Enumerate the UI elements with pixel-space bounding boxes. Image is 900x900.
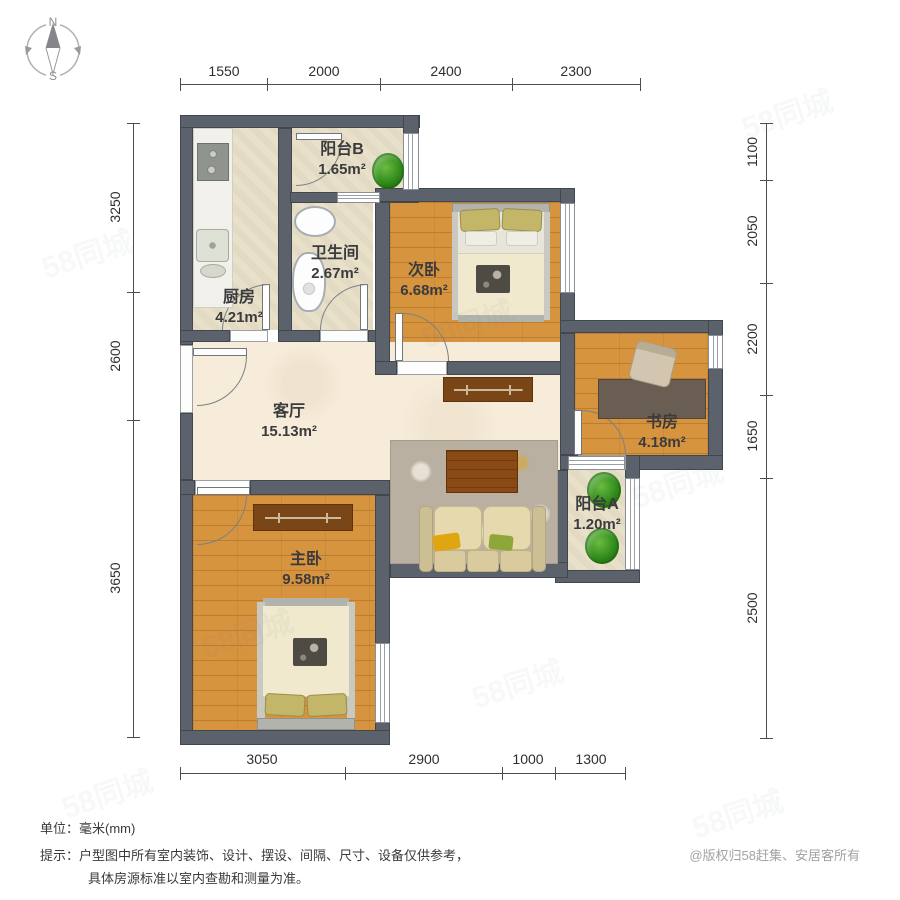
wall-bedroom2-bottom-left xyxy=(375,361,397,375)
wall-top xyxy=(180,115,420,128)
room-area: 9.58m² xyxy=(282,570,330,589)
room-label-balcony-a: 阳台A 1.20m² xyxy=(573,495,621,534)
master-bed xyxy=(257,598,355,730)
dim-tick xyxy=(127,123,140,124)
window-study xyxy=(708,335,723,369)
bed-pillow-small xyxy=(506,231,538,246)
room-name: 次卧 xyxy=(400,261,448,281)
study-door-leaf xyxy=(574,410,582,455)
dim-tick xyxy=(760,395,773,396)
bed-tray xyxy=(476,265,510,293)
bed-headboard xyxy=(257,718,355,730)
wall-bath-bottom-left xyxy=(278,330,320,342)
bedroom2-door-leaf xyxy=(395,313,403,361)
watermark-text: 58同城 xyxy=(35,217,137,288)
window-bedroom2 xyxy=(560,203,575,293)
sofa-seat-cushion xyxy=(467,550,499,572)
unit-prefix: 单位： xyxy=(40,821,79,836)
dim-tick xyxy=(760,180,773,181)
dim-top-label-0: 1550 xyxy=(208,63,239,79)
window-balcony-b xyxy=(403,133,419,190)
footer-tip-row1: 提示：户型图中所有室内装饰、设计、摆设、间隔、尺寸、设备仅供参考， xyxy=(40,845,469,867)
room-name: 厨房 xyxy=(215,288,263,308)
dim-bottom-label-0: 3050 xyxy=(246,751,277,767)
kitchen-sink xyxy=(196,229,229,262)
dim-bottom-label-3: 1300 xyxy=(575,751,606,767)
dim-tick xyxy=(760,123,773,124)
second-bedroom-bed xyxy=(452,203,550,325)
window-balcony-b-bottom xyxy=(337,192,380,203)
room-name: 阳台B xyxy=(318,140,366,160)
room-label-living-room: 客厅 15.13m² xyxy=(261,402,317,441)
wall-bedroom2-bottom-right xyxy=(447,361,575,375)
room-label-second-bedroom: 次卧 6.68m² xyxy=(400,261,448,300)
dim-left-label-1: 2600 xyxy=(107,340,123,371)
wall-left-lower xyxy=(180,480,193,745)
dim-right-label-0: 1100 xyxy=(744,137,760,167)
dim-tick xyxy=(760,478,773,479)
wall-master-top-corner xyxy=(180,480,195,495)
room-label-master-bedroom: 主卧 9.58m² xyxy=(282,550,330,589)
window-balcony-a xyxy=(625,478,640,570)
wall-master-bottom xyxy=(180,730,390,745)
tip-line1: 户型图中所有室内装饰、设计、摆设、间隔、尺寸、设备仅供参考， xyxy=(79,848,469,863)
bed-pillow xyxy=(306,693,347,717)
bed-tray xyxy=(293,638,327,666)
compass-north-label: N xyxy=(49,15,58,29)
bathroom-doorway xyxy=(320,330,368,342)
entrance-threshold xyxy=(180,345,193,413)
sofa-armrest xyxy=(532,506,546,572)
room-label-balcony-b: 阳台B 1.65m² xyxy=(318,140,366,179)
copyright-notice: @版权归58赶集、安居客所有 xyxy=(560,845,860,867)
sofa-armrest xyxy=(419,506,433,572)
dim-bottom-label-2: 1000 xyxy=(512,751,543,767)
watermark-text: 58同城 xyxy=(55,757,157,828)
dim-tick xyxy=(127,292,140,293)
wall-study-top xyxy=(560,320,723,333)
bed-pillow-small xyxy=(465,231,497,246)
dim-left-line xyxy=(133,123,134,737)
balcony-a-threshold xyxy=(568,456,625,470)
dim-top-label-1: 2000 xyxy=(308,63,339,79)
room-label-kitchen: 厨房 4.21m² xyxy=(215,288,263,327)
plant-balcony-b xyxy=(372,153,404,189)
toilet-upper xyxy=(294,206,336,237)
dim-tick xyxy=(760,283,773,284)
room-label-study: 书房 4.18m² xyxy=(638,413,686,452)
wall-kitchen-bath-divider xyxy=(278,128,292,342)
dim-tick xyxy=(380,78,381,91)
bedroom2-doorway xyxy=(397,361,447,375)
dim-tick xyxy=(555,767,556,780)
dim-tick xyxy=(180,767,181,780)
dim-tick xyxy=(180,78,181,91)
compass: N S xyxy=(16,12,90,88)
bed-pillow xyxy=(264,693,305,717)
dim-right-label-2: 2200 xyxy=(744,323,760,354)
dim-right-label-3: 1650 xyxy=(744,420,760,451)
room-area: 1.65m² xyxy=(318,160,366,179)
room-area: 6.68m² xyxy=(400,281,448,300)
wall-kitchen-bottom xyxy=(180,330,230,342)
room-area: 15.13m² xyxy=(261,422,317,441)
tip-line2: 具体房源标准以室内查勘和测量为准。 xyxy=(88,871,309,886)
bed-pillow xyxy=(501,208,542,232)
dim-tick xyxy=(640,78,641,91)
sofa-pillow-green xyxy=(488,534,513,551)
room-name: 书房 xyxy=(638,413,686,433)
dim-tick xyxy=(512,78,513,91)
dim-tick xyxy=(345,767,346,780)
room-area: 4.18m² xyxy=(638,433,686,452)
compass-south-label: S xyxy=(49,69,57,83)
tv-cabinet xyxy=(443,377,533,402)
dim-right-line xyxy=(766,123,767,738)
dim-top-line xyxy=(180,84,640,85)
tip-prefix: 提示： xyxy=(40,848,79,863)
room-name: 客厅 xyxy=(261,402,317,422)
room-name: 阳台A xyxy=(573,495,621,515)
bed-footboard xyxy=(263,598,349,606)
dim-right-label-4: 2500 xyxy=(744,592,760,623)
room-label-bathroom: 卫生间 2.67m² xyxy=(311,244,359,283)
unit-value: 毫米(mm) xyxy=(79,821,135,836)
room-area: 4.21m² xyxy=(215,308,263,327)
balcony-b-door-leaf xyxy=(296,133,342,140)
dim-top-label-2: 2400 xyxy=(430,63,461,79)
entrance-door-leaf xyxy=(193,348,247,356)
bed-pillow xyxy=(459,208,500,232)
watermark-text: 58同城 xyxy=(465,647,567,718)
floorplan-page: N S 1550 2000 2400 2300 3050 2900 1000 1… xyxy=(0,0,900,900)
kitchen-dish xyxy=(200,264,226,278)
sofa-seat-cushion xyxy=(500,550,532,572)
wall-study-bottom xyxy=(626,455,723,470)
dim-right-label-1: 2050 xyxy=(744,215,760,246)
compass-right-arrow xyxy=(74,46,81,55)
dim-tick xyxy=(127,420,140,421)
dim-tick xyxy=(760,738,773,739)
wall-master-top xyxy=(250,480,390,495)
dim-tick xyxy=(267,78,268,91)
room-name: 卫生间 xyxy=(311,244,359,264)
dim-bottom-line xyxy=(180,773,625,774)
wall-bedroom2-left xyxy=(375,202,390,375)
window-master-bedroom xyxy=(375,643,390,723)
room-name: 主卧 xyxy=(282,550,330,570)
dim-tick xyxy=(625,767,626,780)
footer-tip-row2: 具体房源标准以室内查勘和测量为准。 xyxy=(88,868,309,890)
dim-left-label-0: 3250 xyxy=(107,191,123,222)
room-area: 2.67m² xyxy=(311,264,359,283)
watermark-text: 58同城 xyxy=(685,777,787,848)
master-wardrobe xyxy=(253,504,353,531)
bed-footboard xyxy=(458,315,544,322)
master-door-leaf xyxy=(197,487,250,495)
wall-left-mid xyxy=(180,413,193,480)
sofa-seat-cushion xyxy=(434,550,466,572)
wall-study-left xyxy=(560,333,575,455)
wall-bedroom2-top xyxy=(375,188,575,202)
compass-left-arrow xyxy=(25,46,32,55)
footer-unit-row: 单位：毫米(mm) xyxy=(40,818,135,840)
dim-tick xyxy=(502,767,503,780)
coffee-table xyxy=(446,450,518,493)
kitchen-stove xyxy=(197,143,229,181)
wall-left-upper xyxy=(180,115,193,345)
kitchen-doorway xyxy=(230,330,268,342)
dim-top-label-3: 2300 xyxy=(560,63,591,79)
dim-left-label-2: 3650 xyxy=(107,562,123,593)
dim-tick xyxy=(127,737,140,738)
dim-bottom-label-1: 2900 xyxy=(408,751,439,767)
sofa xyxy=(419,504,546,574)
room-area: 1.20m² xyxy=(573,515,621,534)
